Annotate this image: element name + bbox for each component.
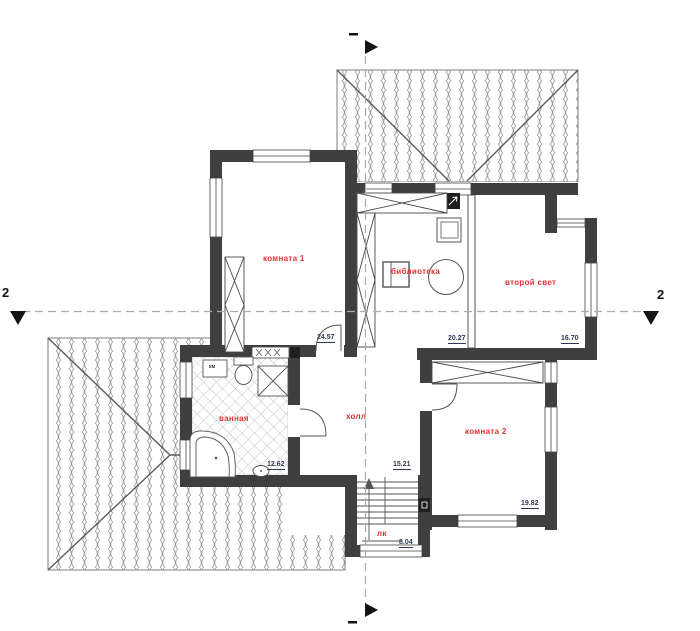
floor-plan-canvas: 2 2 комната 1 библиотека второй свет ван… xyxy=(0,0,700,631)
roof-top xyxy=(337,70,578,182)
room-label-room1: комната 1 xyxy=(263,255,305,263)
vent-niche xyxy=(252,347,300,358)
room-label-hall: холл xyxy=(346,413,366,421)
room-label-library: библиотека xyxy=(391,268,440,276)
section-arrow-left xyxy=(10,311,26,325)
room-area-room1: 24.57 xyxy=(317,334,335,343)
toilet-tank-icon xyxy=(234,357,253,365)
glass-partition xyxy=(468,195,475,348)
room-area-stairs: 8.04 xyxy=(399,539,413,548)
room-area-library: 20.27 xyxy=(448,335,466,344)
room-label-stairs: лк xyxy=(377,530,387,538)
room-label-bathroom: ванная xyxy=(219,415,249,423)
axis-arrow-bottom xyxy=(365,603,378,617)
room-area-bathroom: 12.62 xyxy=(267,461,285,470)
toilet-bowl-icon xyxy=(235,366,252,385)
room-area-room2: 19.82 xyxy=(521,500,539,509)
room-area-hall: 15.21 xyxy=(393,461,411,470)
floor-plan-drawing xyxy=(0,0,700,631)
section-arrow-right xyxy=(643,311,659,325)
shaft-box xyxy=(419,498,430,512)
axis-arrow-top xyxy=(365,40,378,54)
washer-label: км xyxy=(209,365,215,370)
room-label-room2: комната 2 xyxy=(465,428,507,436)
round-table-icon xyxy=(429,260,464,295)
section-label-right: 2 xyxy=(657,288,664,301)
room-label-second-light: второй свет xyxy=(505,279,556,287)
room-area-second-light: 16.70 xyxy=(561,335,579,344)
vent-shaft-icon xyxy=(446,193,460,209)
section-label-left: 2 xyxy=(2,286,9,299)
